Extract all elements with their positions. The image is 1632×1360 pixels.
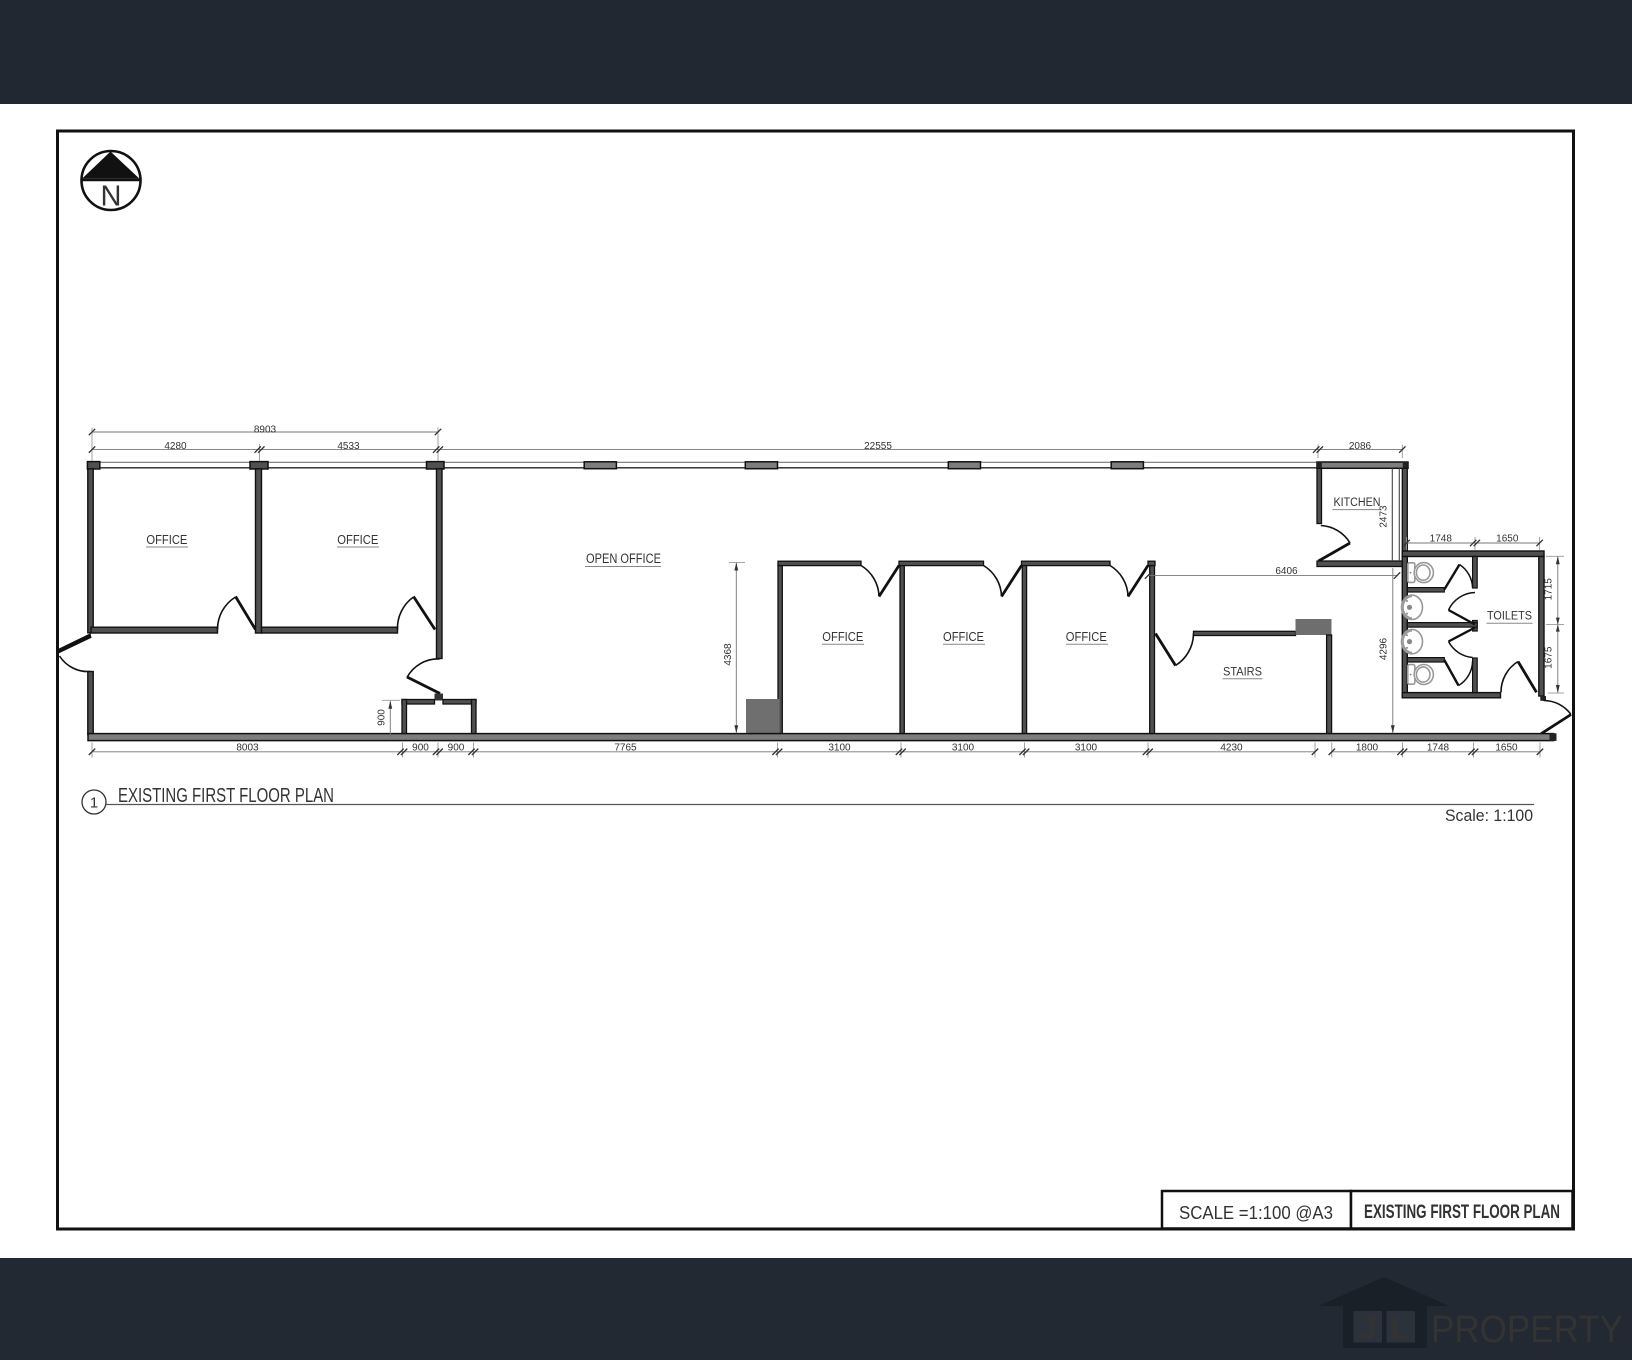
svg-text:2473: 2473	[1378, 505, 1389, 528]
svg-text:N: N	[101, 181, 122, 213]
svg-text:OFFICE: OFFICE	[1066, 629, 1107, 644]
svg-text:2086: 2086	[1349, 441, 1372, 452]
svg-text:1650: 1650	[1495, 742, 1518, 753]
svg-text:OFFICE: OFFICE	[822, 629, 863, 644]
svg-text:7765: 7765	[614, 742, 637, 753]
svg-text:4280: 4280	[164, 441, 187, 452]
svg-text:OFFICE: OFFICE	[337, 532, 378, 547]
svg-text:4230: 4230	[1220, 742, 1243, 753]
svg-text:4533: 4533	[337, 441, 360, 452]
svg-text:STAIRS: STAIRS	[1223, 664, 1262, 678]
svg-text:3100: 3100	[1075, 742, 1098, 753]
svg-text:J: J	[1359, 1310, 1377, 1346]
svg-text:SCALE =1:100 @A3: SCALE =1:100 @A3	[1179, 1203, 1333, 1223]
svg-text:1: 1	[90, 795, 98, 812]
svg-text:Scale: 1:100: Scale: 1:100	[1445, 806, 1533, 825]
svg-text:1715: 1715	[1544, 578, 1555, 601]
svg-text:900: 900	[377, 709, 388, 726]
svg-text:EXISTING FIRST FLOOR PLAN: EXISTING FIRST FLOOR PLAN	[118, 784, 334, 807]
svg-text:OPEN OFFICE: OPEN OFFICE	[586, 551, 661, 566]
svg-text:L: L	[1390, 1310, 1410, 1346]
svg-text:900: 900	[448, 742, 465, 753]
svg-text:3100: 3100	[828, 742, 851, 753]
svg-text:8003: 8003	[236, 742, 259, 753]
svg-text:1748: 1748	[1427, 742, 1450, 753]
svg-text:8903: 8903	[254, 424, 277, 435]
svg-text:OFFICE: OFFICE	[146, 532, 187, 547]
svg-text:1650: 1650	[1496, 534, 1519, 545]
svg-text:4368: 4368	[723, 643, 734, 666]
svg-text:6406: 6406	[1275, 566, 1298, 577]
svg-text:EXISTING FIRST FLOOR PLAN: EXISTING FIRST FLOOR PLAN	[1364, 1201, 1560, 1223]
svg-text:1748: 1748	[1430, 534, 1453, 545]
svg-text:OFFICE: OFFICE	[943, 629, 984, 644]
svg-text:1675: 1675	[1544, 646, 1555, 669]
svg-text:TOILETS: TOILETS	[1487, 611, 1532, 623]
svg-text:3100: 3100	[952, 742, 975, 753]
svg-text:1800: 1800	[1356, 742, 1379, 753]
svg-text:PROPERTY: PROPERTY	[1431, 1309, 1623, 1351]
svg-text:900: 900	[412, 742, 429, 753]
svg-text:22555: 22555	[864, 441, 892, 452]
svg-text:KITCHEN: KITCHEN	[1334, 497, 1381, 509]
svg-text:4296: 4296	[1378, 637, 1389, 660]
